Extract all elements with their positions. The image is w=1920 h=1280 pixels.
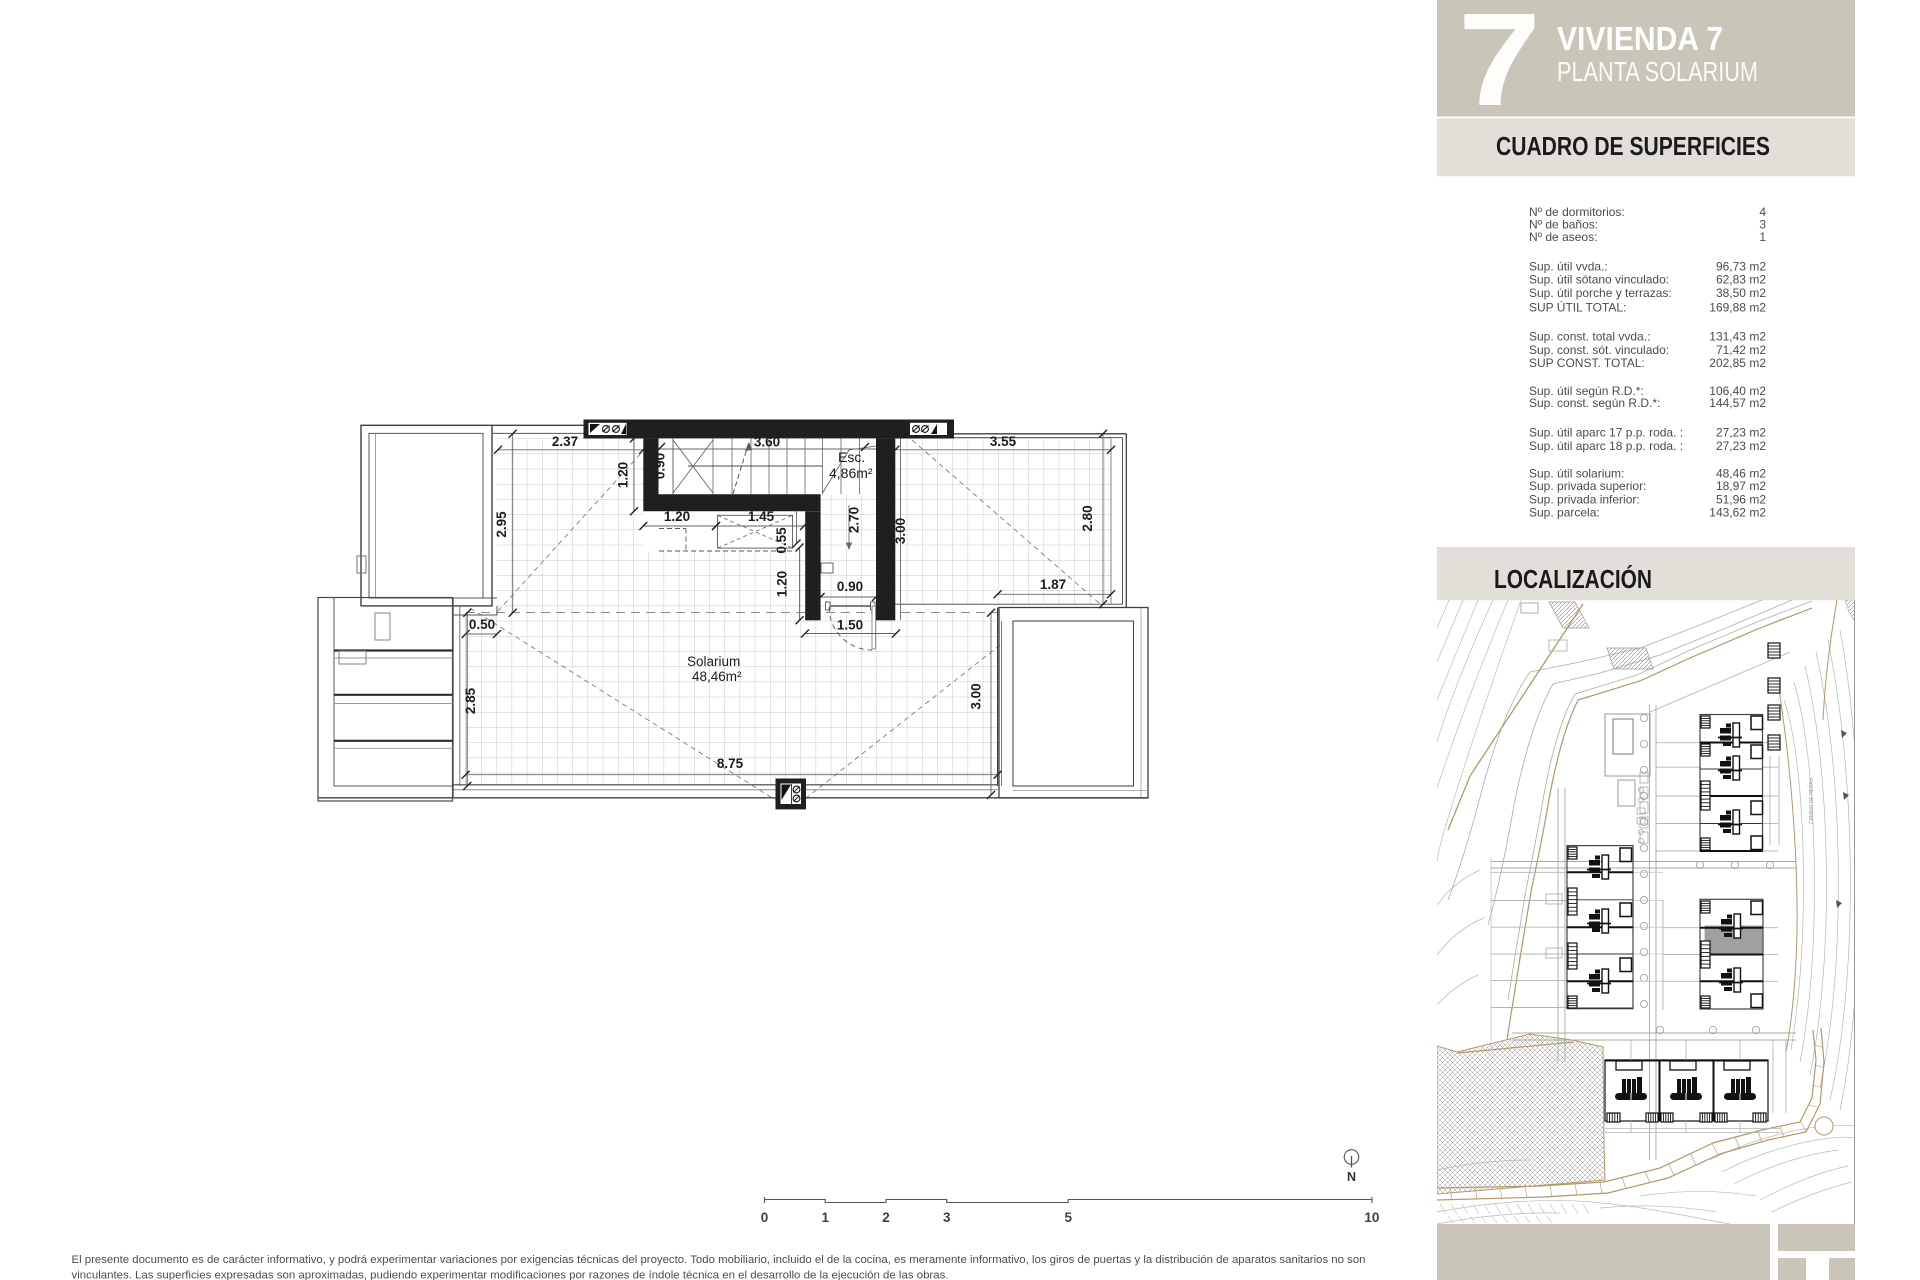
svg-text:3.55: 3.55 (990, 434, 1017, 449)
svg-text:N: N (1347, 1170, 1356, 1184)
svg-text:1.87: 1.87 (1040, 577, 1066, 592)
svg-text:CAMINO DE HERAS: CAMINO DE HERAS (1809, 777, 1815, 824)
svg-text:2.70: 2.70 (847, 507, 862, 533)
svg-text:Sup. útil aparc 18 p.p. roda.: Sup. útil aparc 18 p.p. roda. : (1529, 439, 1683, 453)
svg-text:1.20: 1.20 (616, 462, 631, 488)
svg-text:0: 0 (761, 1210, 769, 1225)
svg-text:Sup. parcela:: Sup. parcela: (1529, 506, 1600, 520)
svg-text:2: 2 (882, 1210, 890, 1225)
svg-text:18,97 m2: 18,97 m2 (1716, 479, 1766, 493)
svg-text:Sup. útil aparc 17 p.p. roda.: Sup. útil aparc 17 p.p. roda. : (1529, 426, 1683, 440)
svg-text:Sup. privada superior:: Sup. privada superior: (1529, 479, 1646, 493)
svg-text:Esc.: Esc. (838, 449, 865, 465)
svg-text:Sup. const. según R.D.*:: Sup. const. según R.D.*: (1529, 396, 1660, 410)
svg-text:0.50: 0.50 (469, 617, 495, 632)
svg-text:1.20: 1.20 (664, 509, 690, 524)
svg-text:4,86m²: 4,86m² (829, 465, 873, 481)
svg-text:2.80: 2.80 (1080, 505, 1095, 531)
svg-text:El presente documento es de ca: El presente documento es de carácter inf… (72, 1254, 1366, 1266)
svg-text:Sup. const. total vvda.:: Sup. const. total vvda.: (1529, 329, 1650, 343)
svg-text:202,85 m2: 202,85 m2 (1709, 356, 1766, 370)
svg-text:0.90: 0.90 (837, 579, 863, 594)
svg-text:1.20: 1.20 (775, 571, 790, 597)
svg-text:131,43 m2: 131,43 m2 (1709, 329, 1766, 343)
svg-text:51,96 m2: 51,96 m2 (1716, 493, 1766, 507)
svg-text:0.55: 0.55 (774, 527, 789, 554)
svg-text:1: 1 (821, 1210, 829, 1225)
svg-text:Sup. útil porche y terrazas:: Sup. útil porche y terrazas: (1529, 286, 1672, 300)
svg-text:1: 1 (1759, 230, 1766, 244)
svg-text:2.85: 2.85 (463, 687, 478, 714)
svg-text:8.75: 8.75 (717, 756, 744, 771)
svg-text:0.90: 0.90 (653, 453, 668, 479)
svg-text:LOCALIZACIÓN: LOCALIZACIÓN (1494, 564, 1652, 594)
svg-text:10: 10 (1364, 1210, 1379, 1225)
svg-text:38,50 m2: 38,50 m2 (1716, 286, 1766, 300)
svg-text:1.45: 1.45 (748, 509, 775, 524)
svg-text:VIVIENDA 7: VIVIENDA 7 (1557, 20, 1723, 57)
svg-text:vinculantes. Las superficies e: vinculantes. Las superficies expresadas … (72, 1270, 949, 1280)
svg-text:3.00: 3.00 (969, 683, 984, 709)
svg-text:169,88 m2: 169,88 m2 (1709, 301, 1766, 315)
svg-text:PLANTA SOLARIUM: PLANTA SOLARIUM (1557, 56, 1758, 87)
svg-text:SUP CONST. TOTAL:: SUP CONST. TOTAL: (1529, 356, 1645, 370)
svg-text:Sup. privada inferior:: Sup. privada inferior: (1529, 493, 1640, 507)
svg-text:7: 7 (1458, 0, 1541, 133)
svg-text:27,23 m2: 27,23 m2 (1716, 426, 1766, 440)
svg-text:62,83 m2: 62,83 m2 (1716, 272, 1766, 286)
svg-text:2.37: 2.37 (552, 434, 578, 449)
svg-text:Nº de aseos:: Nº de aseos: (1529, 230, 1597, 244)
svg-text:3.00: 3.00 (893, 518, 908, 544)
svg-text:Solarium: Solarium (687, 654, 740, 669)
svg-text:Sup. const. sót. vinculado:: Sup. const. sót. vinculado: (1529, 343, 1669, 357)
svg-text:144,57 m2: 144,57 m2 (1709, 396, 1766, 410)
svg-text:Sup. útil sótano vinculado:: Sup. útil sótano vinculado: (1529, 272, 1669, 286)
svg-text:48,46m²: 48,46m² (692, 669, 742, 684)
svg-text:3.60: 3.60 (754, 435, 780, 450)
svg-text:27,23 m2: 27,23 m2 (1716, 439, 1766, 453)
svg-text:SUP ÚTIL TOTAL:: SUP ÚTIL TOTAL: (1529, 300, 1626, 315)
svg-text:CUADRO DE SUPERFICIES: CUADRO DE SUPERFICIES (1496, 131, 1770, 161)
svg-text:1.50: 1.50 (837, 618, 863, 633)
svg-text:2.95: 2.95 (494, 511, 509, 538)
svg-text:143,62 m2: 143,62 m2 (1709, 506, 1766, 520)
svg-text:3: 3 (943, 1210, 951, 1225)
svg-text:5: 5 (1064, 1210, 1072, 1225)
svg-text:71,42 m2: 71,42 m2 (1716, 343, 1766, 357)
